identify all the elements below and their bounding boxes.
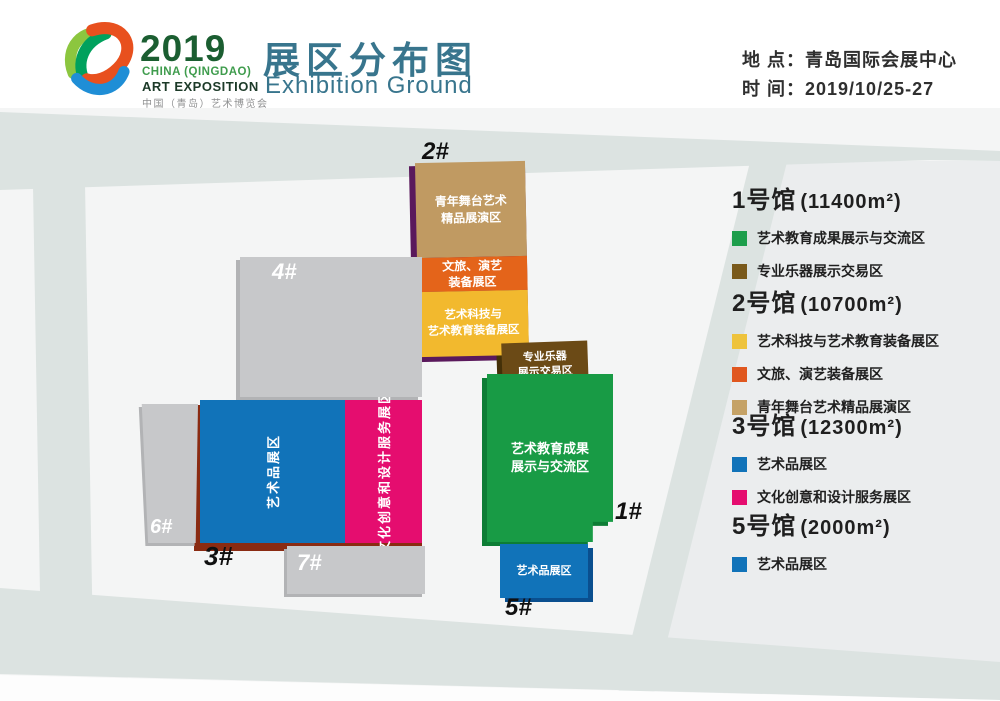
legend-item: 专业乐器展示交易区 xyxy=(732,261,992,281)
legend-hall2-title: 2号馆(10700m²) xyxy=(732,283,992,318)
legend-hall3-title: 3号馆(12300m²) xyxy=(732,406,992,441)
logo-subtitle-en1: CHINA (QINGDAO) xyxy=(142,66,251,78)
hall5-building zone-artworks: 艺术品展区 xyxy=(500,544,588,598)
legend-item: 艺术科技与艺术教育装备展区 xyxy=(732,331,992,351)
legend-item: 文化创意和设计服务展区 xyxy=(732,487,992,507)
swatch-brown xyxy=(732,264,747,279)
legend-hall5-name: 5号馆 xyxy=(732,513,796,540)
logo-subtitle-en2: ART EXPOSITION xyxy=(142,79,259,94)
hall5-label: 5# xyxy=(505,594,532,622)
legend-hall5-title: 5号馆(2000m²) xyxy=(732,506,992,541)
legend-group-hall2: 2号馆(10700m²) 艺术科技与艺术教育装备展区 文旅、演艺装备展区 青年舞… xyxy=(732,283,992,417)
legend-item: 艺术品展区 xyxy=(732,454,992,474)
exhibition-ground-poster: 2019 CHINA (QINGDAO) ART EXPOSITION 中国（青… xyxy=(0,0,1000,701)
legend-item: 艺术品展区 xyxy=(732,554,992,574)
legend-item-label: 艺术教育成果展示与交流区 xyxy=(757,228,925,248)
swatch-blue xyxy=(732,457,747,472)
expo-logo-mark xyxy=(56,20,142,111)
legend-hall5-area: (2000m²) xyxy=(800,517,890,539)
zone-artworks-hall3: 艺术品展区 xyxy=(200,400,345,543)
logo-subtitle-cn: 中国（青岛）艺术博览会 xyxy=(142,95,269,110)
event-info: 地 点：青岛国际会展中心 时 间：2019/10/25-27 xyxy=(742,46,957,104)
swatch-magenta xyxy=(732,490,747,505)
hall3-label: 3# xyxy=(204,541,233,572)
legend-item-label: 艺术品展区 xyxy=(757,554,827,574)
legend-item: 艺术教育成果展示与交流区 xyxy=(732,228,992,248)
legend-item-label: 艺术科技与艺术教育装备展区 xyxy=(757,331,939,351)
legend-item: 文旅、演艺装备展区 xyxy=(732,364,992,384)
legend-group-hall5: 5号馆(2000m²) 艺术品展区 xyxy=(732,506,992,574)
swatch-green xyxy=(732,231,747,246)
hall6-label: 6# xyxy=(150,516,172,539)
hall1-label: 1# xyxy=(615,498,642,526)
legend-hall2-name: 2号馆 xyxy=(732,290,796,317)
legend-hall1-area: (11400m²) xyxy=(800,191,901,213)
swatch-orange xyxy=(732,367,747,382)
zone-youth-stage: 青年舞台艺术 精品展演区 xyxy=(415,161,527,258)
zone-cultural-creative: 文化创意和设计服务展区 xyxy=(345,400,422,543)
hall1-building zone-art-education: 艺术教育成果 展示与交流区 xyxy=(487,374,613,542)
legend-item-label: 文旅、演艺装备展区 xyxy=(757,364,883,384)
legend-group-hall3: 3号馆(12300m²) 艺术品展区 文化创意和设计服务展区 xyxy=(732,406,992,507)
logo-year: 2019 xyxy=(140,28,226,70)
zone-culture-tour-equip: 文旅、演艺 装备展区 xyxy=(417,256,528,292)
legend-item-label: 艺术品展区 xyxy=(757,454,827,474)
legend-hall1-name: 1号馆 xyxy=(732,187,796,214)
hall7-label: 7# xyxy=(297,550,321,576)
swatch-blue xyxy=(732,557,747,572)
event-location: 地 点：青岛国际会展中心 xyxy=(742,46,957,75)
hall2-label: 2# xyxy=(422,138,449,166)
legend-item-label: 文化创意和设计服务展区 xyxy=(757,487,911,507)
hall3-building: 艺术品展区 文化创意和设计服务展区 xyxy=(200,400,422,543)
legend-item-label: 专业乐器展示交易区 xyxy=(757,261,883,281)
event-time: 时 间：2019/10/25-27 xyxy=(742,75,957,104)
swatch-yellow xyxy=(732,334,747,349)
hall4-label: 4# xyxy=(272,259,296,285)
page-title-en: Exhibition Ground xyxy=(265,72,473,100)
hall2-building: 青年舞台艺术 精品展演区 文旅、演艺 装备展区 艺术科技与 艺术教育装备展区 xyxy=(415,161,529,357)
hall7-building: 7# xyxy=(287,546,425,594)
zone-cultural-creative-text: 文化创意和设计服务展区 xyxy=(374,389,393,554)
zone-artworks-hall3-text: 艺术品展区 xyxy=(263,434,282,509)
legend-hall2-area: (10700m²) xyxy=(800,294,902,316)
legend-hall1-title: 1号馆(11400m²) xyxy=(732,180,992,215)
legend-hall3-area: (12300m²) xyxy=(800,417,902,439)
hall6-building: 6# xyxy=(140,404,198,543)
hall4-building: 4# xyxy=(240,257,422,397)
legend-group-hall1: 1号馆(11400m²) 艺术教育成果展示与交流区 专业乐器展示交易区 xyxy=(732,180,992,281)
road-left xyxy=(33,183,93,652)
legend-hall3-name: 3号馆 xyxy=(732,413,796,440)
